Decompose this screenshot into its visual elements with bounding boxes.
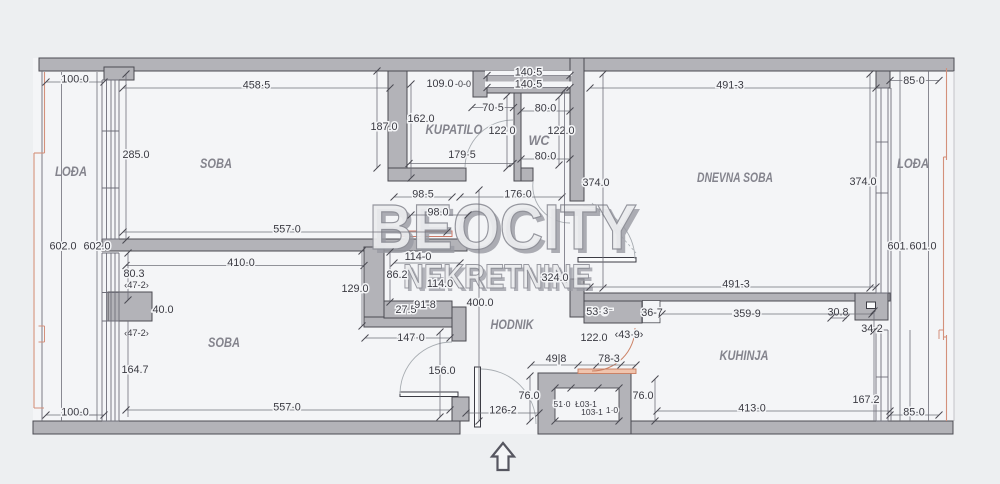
svg-text:140·5: 140·5 — [515, 66, 543, 78]
svg-text:KUPATILO: KUPATILO — [426, 122, 483, 137]
svg-text:109.0: 109.0 — [426, 78, 453, 90]
svg-text:374.0: 374.0 — [849, 176, 876, 188]
svg-text:76.0: 76.0 — [518, 390, 539, 402]
svg-text:DNEVNA SOBA: DNEVNA SOBA — [697, 170, 773, 185]
svg-text:80·0: 80·0 — [535, 151, 557, 163]
svg-text:91-8: 91-8 — [414, 299, 436, 311]
svg-text:413·0: 413·0 — [738, 403, 766, 415]
svg-text:85·0: 85·0 — [903, 75, 925, 87]
svg-text:85·0: 85·0 — [903, 407, 925, 419]
svg-text:147·0: 147·0 — [397, 332, 425, 344]
svg-text:36-7: 36-7 — [641, 307, 663, 319]
svg-text:491-3: 491-3 — [722, 279, 750, 291]
svg-text:114-0: 114-0 — [405, 251, 432, 263]
svg-text:557·0: 557·0 — [273, 224, 301, 236]
svg-text:1·0: 1·0 — [606, 405, 619, 415]
svg-text:324.0: 324.0 — [541, 272, 568, 284]
svg-text:76.0: 76.0 — [632, 390, 653, 402]
svg-text:491-3: 491-3 — [716, 80, 744, 92]
svg-text:601.0: 601.0 — [909, 241, 936, 253]
svg-text:122.0: 122.0 — [580, 332, 607, 344]
svg-text:40.0: 40.0 — [152, 304, 173, 316]
svg-text:SOBA: SOBA — [208, 335, 240, 350]
svg-text:179·5: 179·5 — [448, 149, 476, 161]
svg-text:126-2: 126-2 — [489, 405, 517, 417]
svg-text:49|8: 49|8 — [546, 353, 567, 365]
svg-text:3⁻: 3⁻ — [603, 306, 613, 316]
svg-text:SOBA: SOBA — [200, 156, 232, 171]
svg-text:164.7: 164.7 — [121, 364, 148, 376]
svg-text:70·5: 70·5 — [482, 102, 504, 114]
svg-text:122 0: 122 0 — [488, 125, 515, 137]
svg-text:‹47-2›: ‹47-2› — [124, 280, 149, 290]
svg-text:458·5: 458·5 — [243, 80, 271, 92]
svg-text:98·5: 98·5 — [412, 189, 434, 201]
svg-text:602.0: 602.0 — [83, 241, 110, 253]
svg-text:114.0: 114.0 — [427, 278, 453, 290]
svg-text:‹43·9›: ‹43·9› — [615, 329, 644, 341]
svg-text:HODNIK: HODNIK — [491, 317, 535, 332]
svg-text:176·0: 176·0 — [504, 189, 532, 201]
svg-text:167.2: 167.2 — [852, 394, 879, 406]
svg-text:78-3: 78-3 — [598, 353, 620, 365]
svg-text:80.3: 80.3 — [123, 268, 144, 280]
svg-text:86.2: 86.2 — [386, 269, 407, 281]
svg-text:359-9: 359-9 — [733, 308, 761, 320]
svg-text:140·5: 140·5 — [515, 78, 543, 90]
svg-text:WC: WC — [529, 133, 550, 148]
svg-text:98.0: 98.0 — [427, 207, 448, 219]
svg-text:-0-0: -0-0 — [455, 79, 471, 89]
svg-text:122.0: 122.0 — [547, 125, 574, 137]
svg-text:LOĐA: LOĐA — [897, 156, 929, 171]
svg-text:602.0: 602.0 — [49, 241, 76, 253]
svg-text:KUHINJA: KUHINJA — [720, 348, 769, 363]
svg-text:80·0: 80·0 — [535, 103, 557, 115]
svg-text:374.0: 374.0 — [582, 177, 609, 189]
svg-text:187.0: 187.0 — [370, 121, 397, 133]
svg-text:LOĐA: LOĐA — [55, 164, 87, 179]
svg-text:400.0: 400.0 — [466, 297, 493, 309]
svg-text:410·0: 410·0 — [227, 257, 255, 269]
svg-text:557·0: 557·0 — [273, 402, 301, 414]
svg-text:103-1: 103-1 — [581, 407, 603, 417]
svg-text:51·0: 51·0 — [553, 399, 570, 409]
svg-text:100·0: 100·0 — [61, 74, 89, 86]
svg-text:156.0: 156.0 — [428, 365, 455, 377]
svg-text:285.0: 285.0 — [122, 149, 149, 161]
svg-text:129.0: 129.0 — [341, 283, 368, 295]
svg-text:30.8: 30.8 — [827, 307, 848, 319]
svg-text:100·0: 100·0 — [61, 407, 89, 419]
